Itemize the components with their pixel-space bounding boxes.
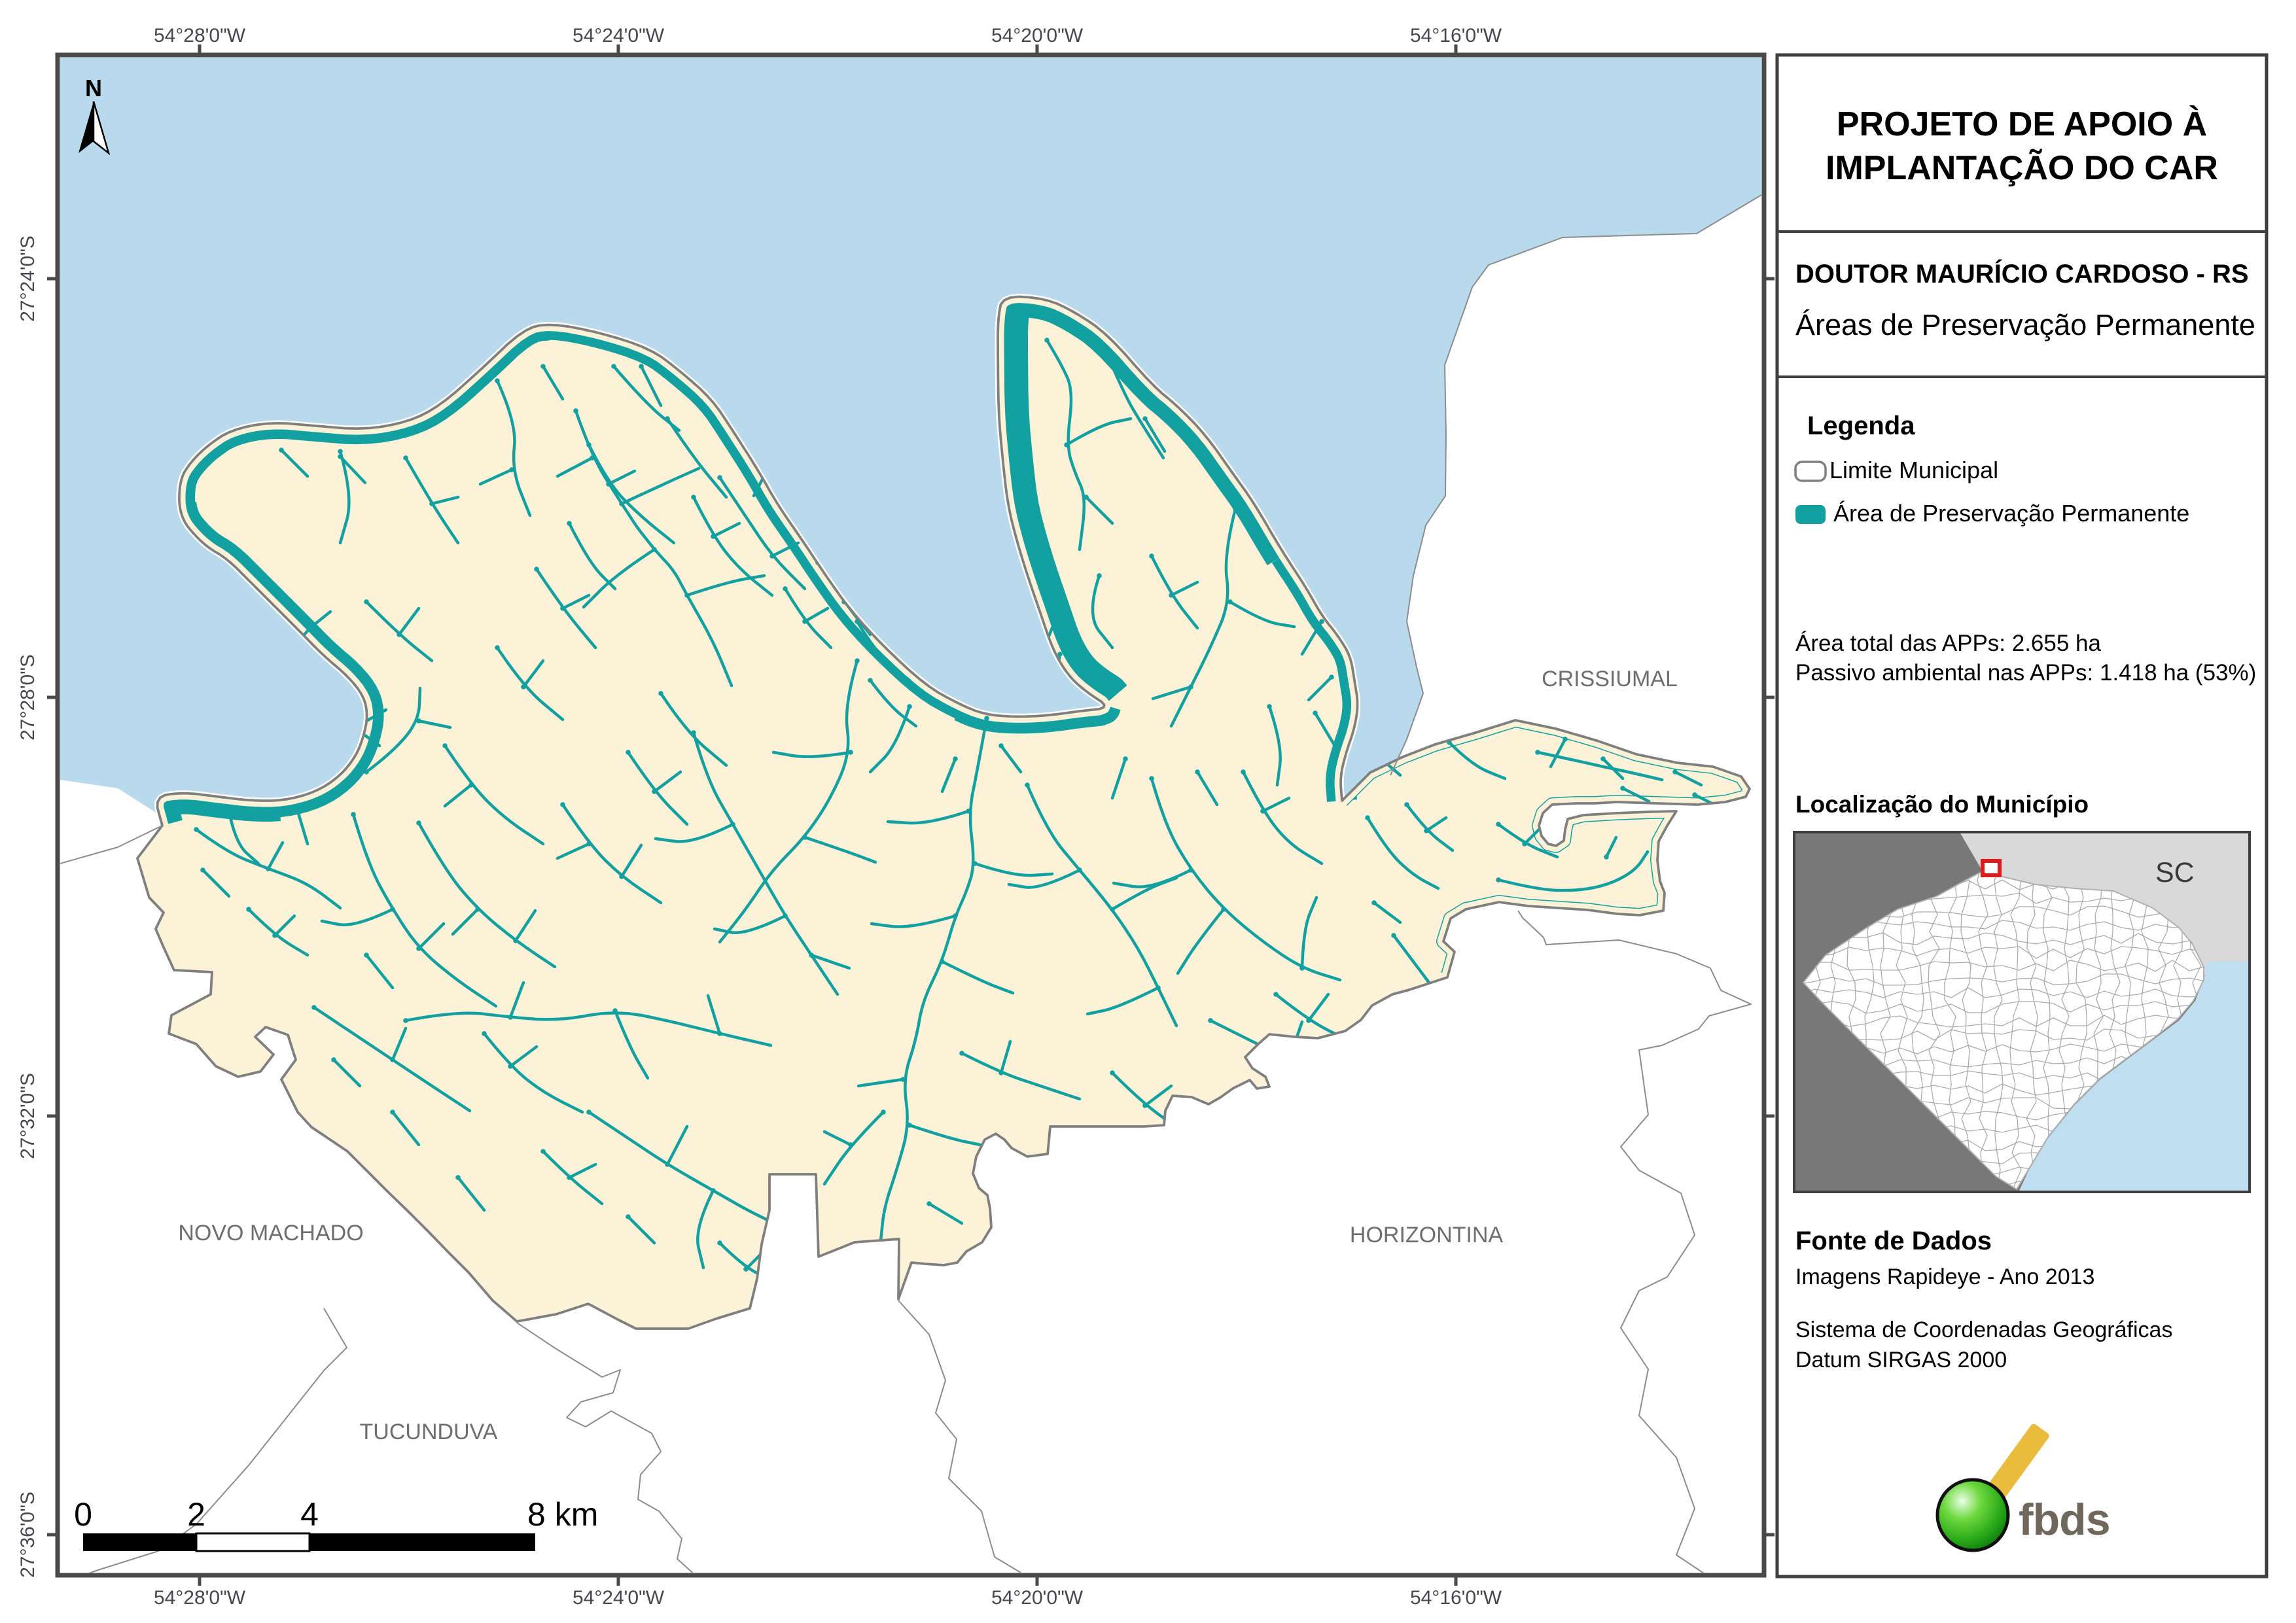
svg-text:IMPLANTAÇÃO DO CAR: IMPLANTAÇÃO DO CAR [1826,148,2218,187]
svg-text:54°28'0"W: 54°28'0"W [154,25,246,46]
svg-text:54°28'0"W: 54°28'0"W [154,1587,246,1609]
svg-text:54°24'0"W: 54°24'0"W [573,1587,665,1609]
svg-text:CRISSIUMAL: CRISSIUMAL [1542,667,1678,691]
svg-text:TUCUNDUVA: TUCUNDUVA [360,1420,498,1444]
svg-text:NOVO MACHADO: NOVO MACHADO [178,1221,363,1246]
svg-text:0: 0 [74,1496,92,1533]
svg-text:SC: SC [2155,857,2195,888]
svg-text:PROJETO DE APOIO À: PROJETO DE APOIO À [1837,105,2207,143]
svg-text:Fonte de Dados: Fonte de Dados [1795,1227,1992,1255]
svg-text:Limite Municipal: Limite Municipal [1829,457,1998,483]
svg-text:2: 2 [187,1496,205,1533]
svg-text:54°16'0"W: 54°16'0"W [1410,1587,1502,1609]
svg-text:Imagens Rapideye - Ano 2013: Imagens Rapideye - Ano 2013 [1795,1265,2094,1289]
svg-text:DOUTOR MAURÍCIO CARDOSO - RS: DOUTOR MAURÍCIO CARDOSO - RS [1795,259,2249,288]
svg-text:54°20'0"W: 54°20'0"W [991,1587,1084,1609]
svg-text:Datum SIRGAS 2000: Datum SIRGAS 2000 [1795,1348,2007,1372]
svg-text:27°36'0"S: 27°36'0"S [17,1492,39,1578]
svg-text:54°16'0"W: 54°16'0"W [1410,25,1502,46]
svg-text:Área de Preservação Permanente: Área de Preservação Permanente [1833,500,2189,527]
svg-text:Área total das APPs: 2.655 ha: Área total das APPs: 2.655 ha [1795,631,2102,656]
svg-text:27°32'0"S: 27°32'0"S [17,1073,39,1159]
svg-text:Passivo ambiental nas APPs: 1.: Passivo ambiental nas APPs: 1.418 ha (53… [1795,660,2256,686]
svg-text:4: 4 [300,1496,319,1533]
svg-text:54°20'0"W: 54°20'0"W [991,25,1084,46]
svg-text:8 km: 8 km [527,1496,598,1533]
svg-text:27°28'0"S: 27°28'0"S [17,654,39,741]
svg-text:Sistema de Coordenadas Geográf: Sistema de Coordenadas Geográficas [1795,1318,2172,1342]
svg-text:HORIZONTINA: HORIZONTINA [1350,1223,1504,1248]
svg-text:Legenda: Legenda [1807,411,1915,440]
svg-text:54°24'0"W: 54°24'0"W [573,25,665,46]
svg-text:Localização do Município: Localização do Município [1795,791,2089,818]
svg-text:Áreas de Preservação Permanent: Áreas de Preservação Permanente [1795,308,2255,341]
svg-text:N: N [85,75,102,101]
svg-text:27°24'0"S: 27°24'0"S [17,236,39,322]
svg-text:fbds: fbds [2019,1495,2110,1544]
